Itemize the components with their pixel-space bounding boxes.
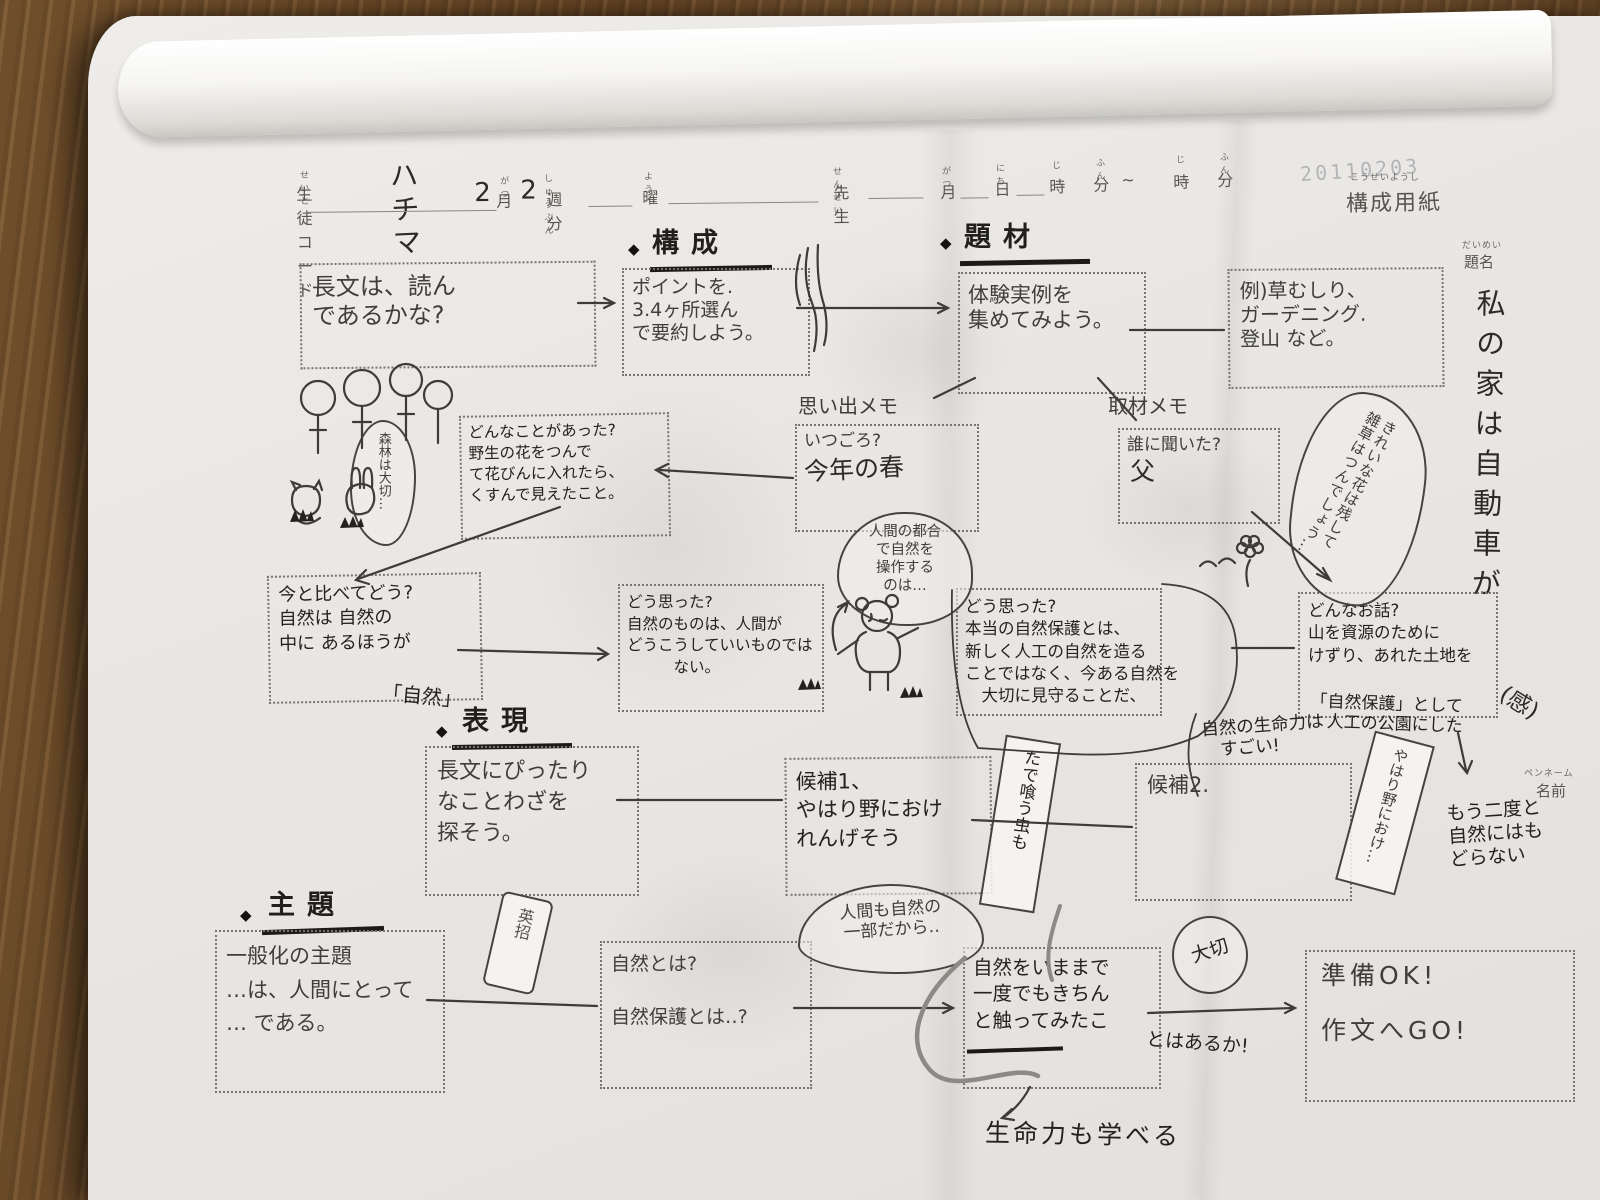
schedule-day-label: 日 — [994, 176, 1010, 200]
week-label: 週分 — [546, 186, 563, 234]
section-kousei: 構成 — [652, 228, 730, 260]
taisetsu-bubble: 大切 — [1172, 916, 1248, 994]
furigana-kouseiyoushi: こうせいようし — [1350, 170, 1420, 183]
learn-note: 生命力も学べる — [985, 1118, 1182, 1151]
section-hyougen: 表現 — [462, 706, 540, 738]
node-thought1: どう思った? 自然のものは、人間が どうこうしていいものでは ない。 — [618, 584, 824, 712]
yahari-slip-text: やはり野におけ… — [1359, 746, 1411, 881]
schedule-min2-label: 分 — [1217, 167, 1233, 191]
shinrin-bubble-text: 森林は大切… — [375, 432, 391, 532]
node-shudai: 一般化の主題 …は、人間にとって … である。 — [215, 930, 445, 1093]
no-return-note: もう二度と 自然にはも どらない — [1446, 793, 1590, 871]
photo-of-planning-sheet: せいと 生徒コード ハチマ 2 がつ 月 2 しゅうぶん 週分 よう 曜 せんせ… — [0, 0, 1600, 1200]
diamond-bullet-icon: ◆ — [940, 234, 952, 252]
memo2-question: 誰に聞いた? — [1120, 430, 1278, 455]
diamond-bullet-icon: ◆ — [436, 722, 448, 740]
schedule-month-label: 月 — [940, 179, 956, 203]
node-kousei-points: ポイントを. 3.4ヶ所選ん で要約しよう。 — [622, 268, 810, 376]
node-shuzai-memo: 誰に聞いた? 父 — [1118, 428, 1280, 524]
furigana-ji: じ — [1176, 153, 1186, 166]
node-compare: 今と比べてどう? 自然は 自然の 中に あるほうが — [267, 572, 483, 704]
node-check: 自然をいままで 一度でもきちん と触ってみたこ — [963, 947, 1161, 1089]
ningen-bubble-text: 人間も自然の 一部だから‥ — [799, 894, 983, 947]
week-month-value: 2 — [474, 178, 491, 209]
node-kouho1: 候補1、 やはり野におけ れんげそう — [784, 756, 992, 896]
bear-thought-bubble: 人間の都合 で自然を 操作する のは… — [837, 512, 973, 626]
essay-title-label: 題名 — [1464, 251, 1494, 272]
week-value: 2 — [520, 175, 537, 206]
node-proverb: 長文にぴったり なことわざを 探そう。 — [425, 746, 639, 896]
tilde: ~ — [1121, 170, 1135, 189]
memo1-label: 思い出メモ — [798, 394, 898, 418]
furigana-ji: じ — [1052, 158, 1062, 171]
bear-thought-text: 人間の都合 で自然を 操作する のは… — [839, 523, 971, 596]
furigana-daimei: だいめい — [1462, 238, 1502, 251]
diamond-bullet-icon: ◆ — [628, 240, 640, 258]
section-daizai: 題材 — [964, 222, 1042, 254]
memo2-label: 取材メモ — [1108, 394, 1188, 418]
schedule-hour-label: 時 — [1049, 173, 1065, 197]
month-label: 月 — [496, 188, 512, 212]
node-ready: 準備OK! 作文へGO! — [1305, 950, 1575, 1102]
shinrin-bubble: 森林は大切… — [350, 420, 416, 546]
section-shudai: 主題 — [268, 890, 346, 922]
schedule-hour2-label: 時 — [1173, 168, 1189, 192]
penname-label: ペンネーム — [1524, 766, 1574, 779]
lifeforce-note: 自然の生命力は すごい! — [1201, 712, 1326, 762]
memo1-answer: 今年の春 — [796, 447, 978, 490]
node-examples: 例)草むしり、 ガーデニング. 登山 など。 — [1227, 267, 1444, 389]
node-kouho2: 候補2. — [1135, 763, 1352, 901]
node-daizai-collect: 体験実例を 集めてみよう。 — [958, 272, 1146, 394]
node-intro: 長文は、読ん であるかな? — [300, 261, 597, 370]
taisetsu-bubble-text: 大切 — [1172, 929, 1248, 973]
teacher-label: 先生 — [833, 179, 850, 227]
student-code-value: ハチマ — [389, 158, 432, 260]
node-episode: どんなことがあった? 野生の花をつんで て花びんに入れたら、 くすんで見えたこと… — [459, 412, 671, 540]
diamond-bullet-icon: ◆ — [240, 906, 252, 924]
memo2-answer: 父 — [1120, 455, 1278, 489]
node-shizen: 自然とは? 自然保護とは‥? — [600, 941, 812, 1089]
tade-slip-text: たで喰う虫も — [998, 747, 1042, 898]
node-thought2: どう思った? 本当の自然保護とは、 新しく人工の自然を造る ことではなく、今ある… — [956, 588, 1162, 716]
schedule-min-label: 分 — [1093, 172, 1109, 196]
sheet-title: 構成用紙 — [1346, 184, 1443, 218]
charm-tag-text: 英招 — [499, 905, 538, 979]
day-of-week-label: 曜 — [642, 184, 658, 208]
